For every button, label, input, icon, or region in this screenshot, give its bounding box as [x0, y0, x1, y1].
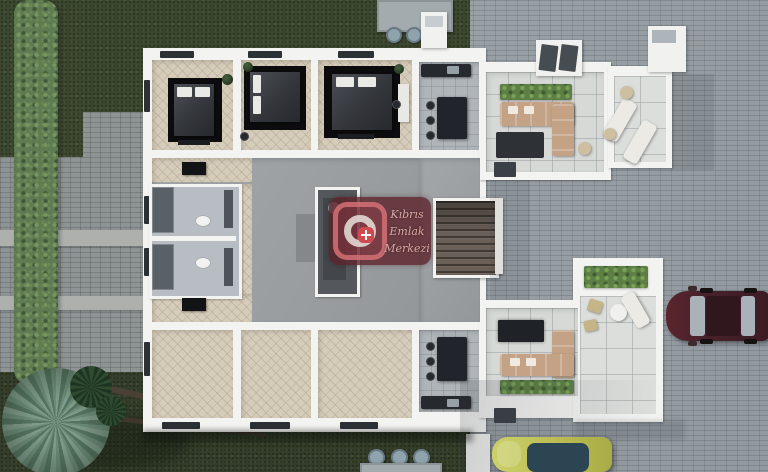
window [340, 422, 378, 429]
entry-door-lower [494, 408, 516, 423]
living-upper-sofa-return [552, 104, 574, 156]
sofa-cushion [524, 106, 534, 114]
pillow [358, 77, 376, 87]
toilet-upper [196, 216, 210, 226]
kitchen-lower-counter [421, 396, 471, 409]
pillow [336, 77, 354, 87]
kitchen-upper-island [437, 97, 467, 139]
window [144, 342, 150, 376]
vanity-upper [224, 190, 233, 228]
watermark-logo [333, 202, 387, 260]
kitchen-sink [447, 66, 459, 74]
bedside-stool [240, 132, 249, 141]
hedge-row [14, 0, 58, 384]
kitchen-lower-island [437, 337, 467, 381]
small-palm [96, 396, 126, 426]
watermark-logo-pin [358, 227, 374, 243]
bedroom4-floor [152, 330, 233, 418]
bar-stool [426, 116, 435, 125]
garden-stool [406, 27, 422, 43]
living-lower-planter [500, 380, 574, 394]
pillow [177, 87, 192, 97]
hall-desk-upper [182, 162, 206, 175]
bedroom6-floor [318, 330, 412, 418]
watermark-line1: Kıbrıs [384, 206, 430, 223]
shower-lower [152, 244, 174, 290]
rooftop-panel [558, 44, 578, 72]
kitchen-upper-counter [421, 64, 471, 77]
pillow [253, 96, 261, 114]
window [248, 51, 282, 58]
floor-plan-render: Kıbrıs Emlak Merkezi [0, 0, 768, 472]
rear-window [741, 296, 755, 336]
bathroom-divider-wall [149, 236, 236, 241]
side-mirror [688, 286, 697, 291]
bar-stool [426, 372, 435, 381]
rooftop-panel [538, 44, 558, 72]
bar-stool [426, 357, 435, 366]
bar-stool [426, 342, 435, 351]
sofa-cushion [508, 106, 518, 114]
watermark-text: Kıbrıs Emlak Merkezi [384, 206, 430, 260]
toilet-lower [196, 258, 210, 268]
staircase [433, 198, 499, 278]
window [250, 422, 290, 429]
plant-pot [243, 62, 253, 72]
terrace-lower-planter [584, 266, 648, 288]
watermark-line3: Merkezi [384, 240, 430, 257]
plant-pot [394, 64, 404, 74]
watermark-line2: Emlak [384, 223, 430, 240]
bedroom5-floor [241, 330, 311, 418]
window [162, 422, 200, 429]
hood-highlight [497, 441, 521, 467]
bed-bench [338, 134, 374, 139]
side-mirror [688, 341, 697, 346]
living-upper-rug [496, 132, 544, 158]
pouf [578, 142, 591, 155]
sofa-cushion [526, 358, 536, 366]
windshield [690, 296, 705, 336]
garden-table-bottom [360, 463, 442, 472]
vanity-lower [224, 248, 233, 286]
sofa-cushion [510, 358, 520, 366]
bar-stool [426, 101, 435, 110]
window [338, 51, 374, 58]
pillow [195, 87, 210, 97]
window [160, 51, 194, 58]
living-upper-planter [500, 84, 572, 100]
bar-stool [426, 131, 435, 140]
pouf [604, 128, 616, 140]
utility-vent [652, 30, 676, 43]
pouf [620, 86, 633, 99]
window [144, 80, 150, 112]
plant-pot [222, 74, 233, 85]
desk-chair [392, 100, 401, 109]
chimney-vent [425, 16, 443, 27]
hall-desk-lower [182, 298, 206, 311]
shower-upper [152, 187, 174, 233]
tv-console [498, 320, 544, 342]
gate-pillar [466, 434, 490, 472]
garden-stool [386, 27, 402, 43]
car-glasshouse [527, 443, 589, 472]
stair-sidewall [495, 198, 503, 274]
entry-door-upper [494, 162, 516, 177]
bed-bench [178, 140, 210, 145]
kitchen-sink [447, 399, 459, 407]
pillow [253, 75, 261, 93]
